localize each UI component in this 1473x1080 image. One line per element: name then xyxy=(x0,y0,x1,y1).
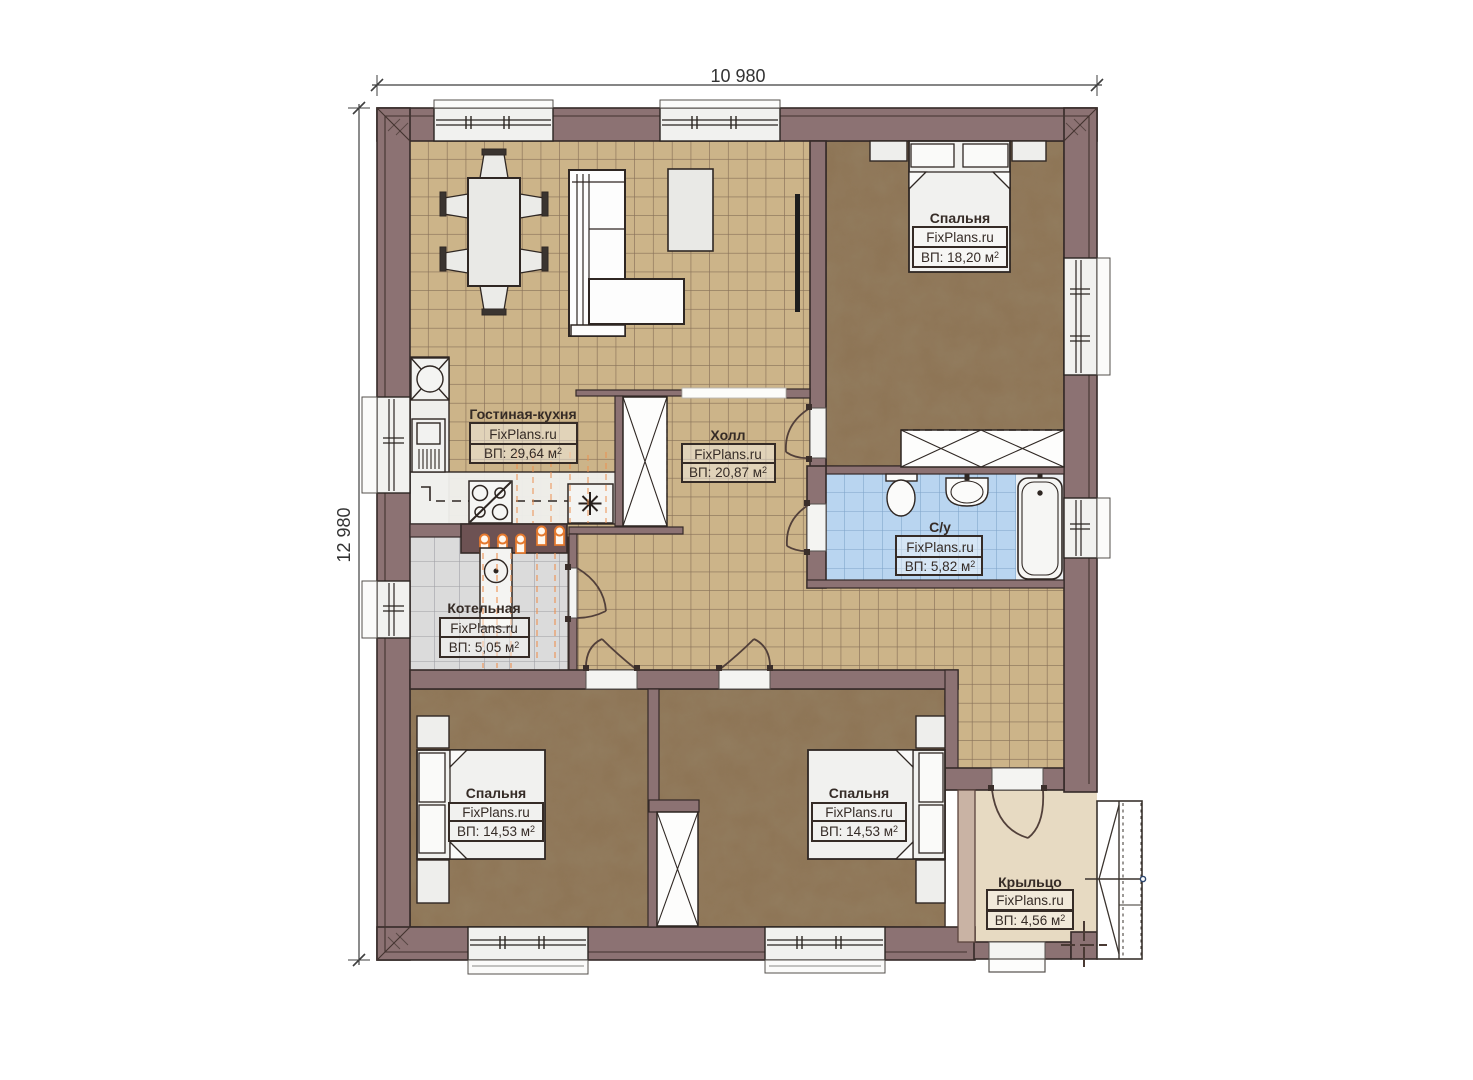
svg-text:FixPlans.ru: FixPlans.ru xyxy=(450,621,518,636)
svg-text:10 980: 10 980 xyxy=(710,66,765,86)
svg-text:12 980: 12 980 xyxy=(334,507,354,562)
svg-text:FixPlans.ru: FixPlans.ru xyxy=(926,230,994,245)
svg-text:ВП: 18,20 м2: ВП: 18,20 м2 xyxy=(921,250,999,265)
svg-text:Спальня: Спальня xyxy=(829,785,889,801)
svg-text:ВП: 5,82 м2: ВП: 5,82 м2 xyxy=(905,559,976,574)
svg-text:FixPlans.ru: FixPlans.ru xyxy=(694,447,762,462)
svg-text:Спальня: Спальня xyxy=(466,785,526,801)
svg-text:Гостиная-кухня: Гостиная-кухня xyxy=(469,406,576,422)
svg-text:Холл: Холл xyxy=(710,427,745,443)
svg-text:Спальня: Спальня xyxy=(930,210,990,226)
svg-text:FixPlans.ru: FixPlans.ru xyxy=(996,893,1064,908)
svg-text:ВП: 20,87 м2: ВП: 20,87 м2 xyxy=(689,465,767,480)
svg-text:ВП: 29,64 м2: ВП: 29,64 м2 xyxy=(484,446,562,461)
svg-text:ВП: 5,05 м2: ВП: 5,05 м2 xyxy=(449,640,520,655)
svg-text:FixPlans.ru: FixPlans.ru xyxy=(906,540,974,555)
svg-text:С/у: С/у xyxy=(929,519,951,535)
svg-text:Котельная: Котельная xyxy=(447,600,520,616)
svg-text:ВП: 14,53 м2: ВП: 14,53 м2 xyxy=(457,824,535,839)
svg-text:FixPlans.ru: FixPlans.ru xyxy=(489,427,557,442)
svg-text:ВП: 4,56 м2: ВП: 4,56 м2 xyxy=(995,913,1066,928)
svg-text:ВП: 14,53 м2: ВП: 14,53 м2 xyxy=(820,824,898,839)
svg-text:FixPlans.ru: FixPlans.ru xyxy=(825,805,893,820)
svg-text:FixPlans.ru: FixPlans.ru xyxy=(462,805,530,820)
svg-text:Крыльцо: Крыльцо xyxy=(998,874,1062,890)
